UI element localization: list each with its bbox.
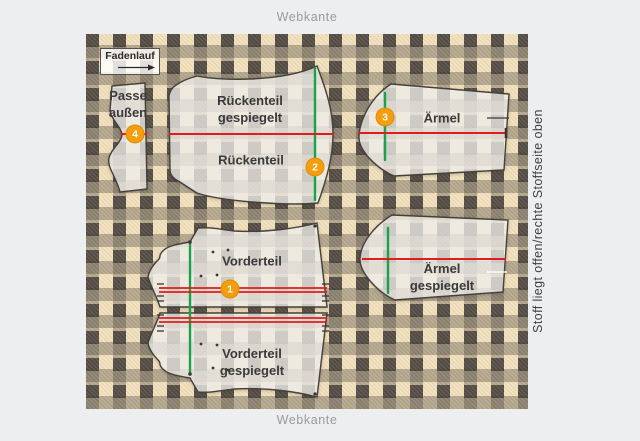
step-marker-4: 4 (126, 125, 145, 144)
piece-label-aermel-gespiegelt: Ärmel gespiegelt (399, 260, 485, 294)
piece-label-aermel: Ärmel (402, 109, 482, 126)
step-marker-4-number: 4 (132, 128, 138, 140)
step-marker-3: 3 (376, 108, 395, 127)
fadenlauf-box: Fadenlauf (100, 48, 160, 75)
step-marker-1: 1 (221, 280, 240, 299)
step-marker-3-number: 3 (382, 111, 388, 123)
fadenlauf-label: Fadenlauf (105, 51, 155, 63)
piece-label-vorderteil-gespiegelt: Vorderteil gespiegelt (204, 345, 300, 379)
piece-label-passe-aussen: Passe außen (104, 87, 152, 121)
step-marker-2: 2 (306, 158, 325, 177)
grainline-arrow-icon (117, 64, 155, 71)
piece-label-rueckenteil-gespiegelt: Rückenteil gespiegelt (194, 92, 306, 126)
piece-label-rueckenteil: Rückenteil (195, 151, 307, 168)
piece-aermel (359, 84, 509, 176)
page-background: { "colors":{ "pagebg":"#edeef0", "cream"… (0, 0, 640, 441)
diagram-canvas: Webkante Webkante Stoff liegt offen/rech… (0, 0, 640, 441)
piece-label-vorderteil: Vorderteil (196, 252, 308, 269)
step-marker-1-number: 1 (227, 283, 233, 295)
step-marker-2-number: 2 (312, 161, 318, 173)
pattern-overlay (0, 0, 640, 441)
